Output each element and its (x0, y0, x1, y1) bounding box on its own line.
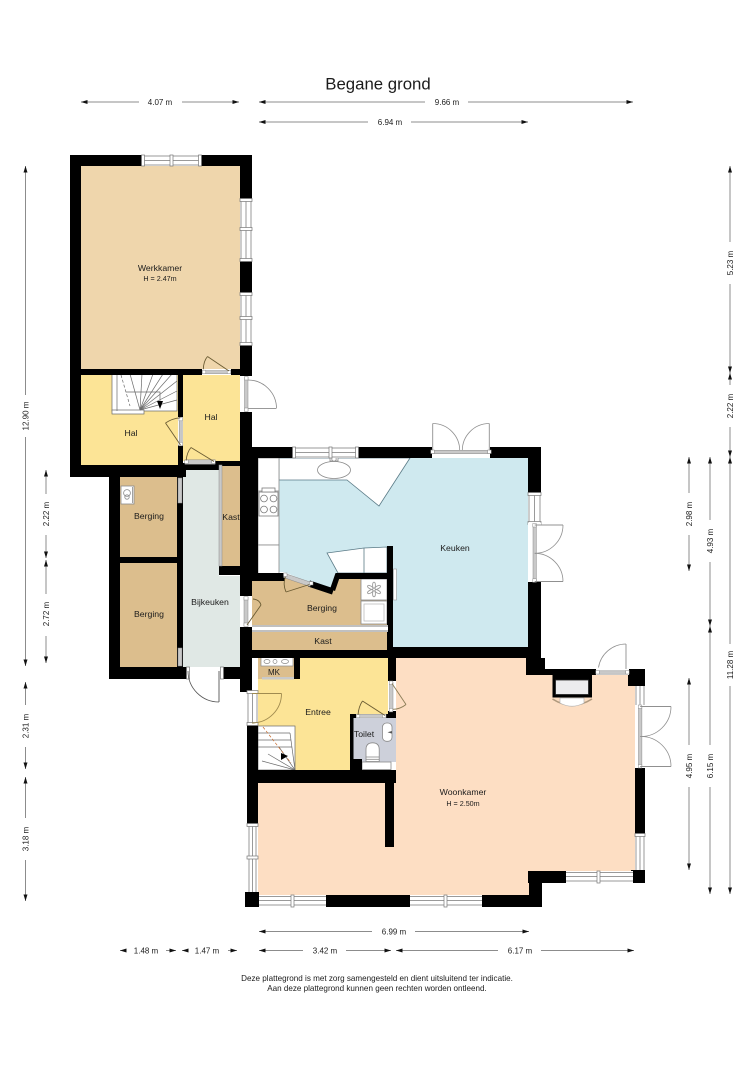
svg-text:4.95 m: 4.95 m (685, 753, 694, 778)
svg-text:9.66 m: 9.66 m (435, 98, 460, 107)
svg-text:H = 2.47m: H = 2.47m (143, 274, 176, 283)
svg-text:Entree: Entree (305, 707, 331, 717)
svg-text:2.31 m: 2.31 m (22, 713, 31, 738)
svg-text:Hal: Hal (204, 412, 217, 422)
svg-text:1.48 m: 1.48 m (134, 947, 159, 956)
svg-text:Kast: Kast (314, 636, 332, 646)
svg-text:1.47 m: 1.47 m (195, 947, 220, 956)
svg-text:2.22 m: 2.22 m (726, 393, 735, 418)
svg-text:Woonkamer: Woonkamer (440, 787, 487, 797)
svg-text:3.42 m: 3.42 m (313, 947, 338, 956)
svg-text:2.22 m: 2.22 m (42, 501, 51, 526)
svg-text:6.17 m: 6.17 m (508, 947, 533, 956)
svg-text:Deze plattegrond is met zorg s: Deze plattegrond is met zorg samengestel… (241, 974, 513, 983)
svg-text:Berging: Berging (307, 603, 337, 613)
svg-text:Begane grond: Begane grond (325, 75, 430, 94)
svg-text:6.99 m: 6.99 m (382, 928, 407, 937)
svg-text:2.98 m: 2.98 m (685, 501, 694, 526)
svg-text:Keuken: Keuken (440, 543, 470, 553)
svg-text:2.72 m: 2.72 m (42, 601, 51, 626)
svg-text:Aan deze plattegrond kunnen ge: Aan deze plattegrond kunnen geen rechten… (267, 984, 487, 993)
svg-text:Hal: Hal (124, 428, 137, 438)
svg-text:12.90 m: 12.90 m (22, 401, 31, 430)
svg-text:Toilet: Toilet (354, 729, 375, 739)
svg-text:Berging: Berging (134, 609, 164, 619)
svg-text:6.94 m: 6.94 m (378, 118, 403, 127)
svg-text:Bijkeuken: Bijkeuken (191, 597, 229, 607)
svg-text:Kast: Kast (222, 512, 240, 522)
svg-text:5.23 m: 5.23 m (726, 250, 735, 275)
svg-text:6.15 m: 6.15 m (706, 753, 715, 778)
svg-text:MK: MK (268, 668, 281, 677)
svg-text:4.93 m: 4.93 m (706, 528, 715, 553)
svg-text:Berging: Berging (134, 511, 164, 521)
svg-text:Werkkamer: Werkkamer (138, 263, 182, 273)
svg-text:3.18 m: 3.18 m (22, 826, 31, 851)
svg-text:11.28 m: 11.28 m (726, 651, 735, 680)
svg-text:4.07 m: 4.07 m (148, 98, 173, 107)
svg-text:H = 2.50m: H = 2.50m (446, 799, 479, 808)
